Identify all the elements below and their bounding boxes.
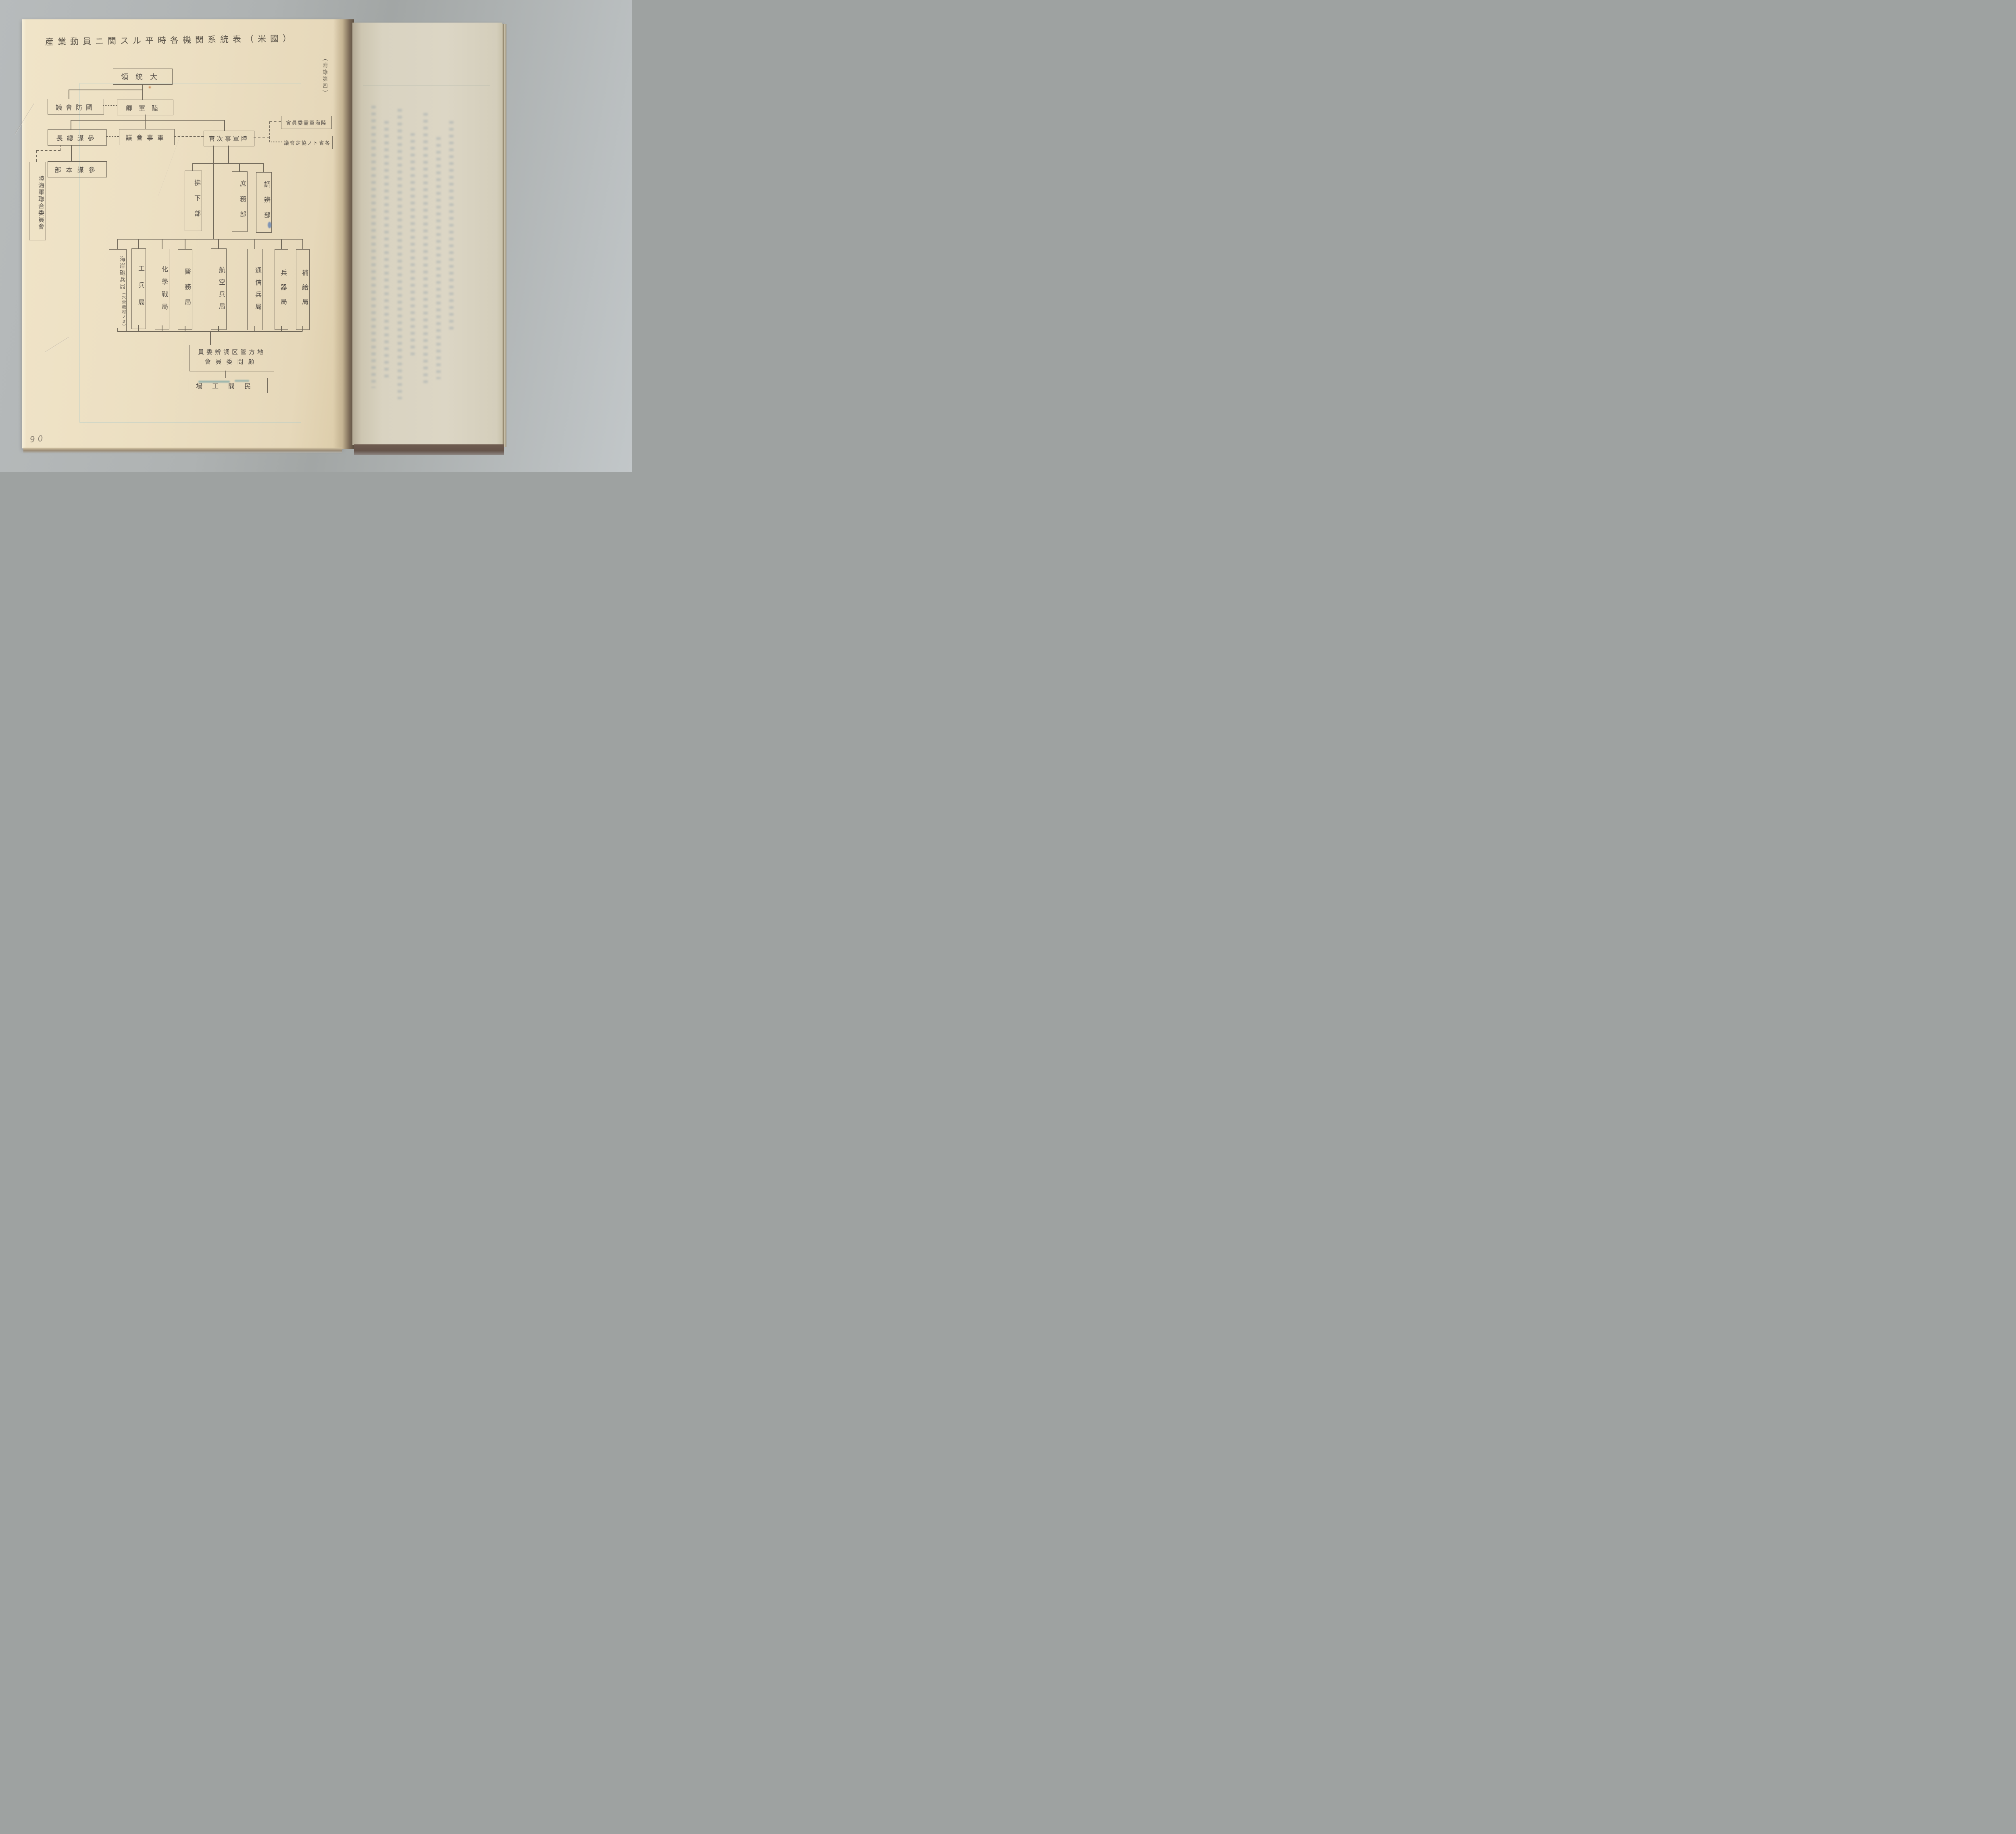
connector-dashed bbox=[254, 137, 269, 138]
connector-line bbox=[138, 239, 139, 248]
node-president: 大統領 bbox=[113, 69, 173, 85]
connector-dashed bbox=[269, 121, 281, 122]
node-army-secretary: 陸軍卿 bbox=[117, 100, 173, 115]
show-through-column bbox=[398, 109, 402, 399]
connector-line bbox=[117, 239, 118, 249]
appendix-margin-note: （附錄第四） bbox=[321, 56, 328, 104]
connector-line bbox=[185, 326, 185, 331]
connector-dashed bbox=[36, 150, 37, 162]
connector-line bbox=[302, 326, 303, 331]
page-stack-edge bbox=[502, 24, 506, 447]
node-bureau-supply: 補給局 bbox=[296, 249, 310, 330]
connector-line bbox=[69, 90, 69, 99]
connector-line bbox=[71, 145, 72, 161]
node-civilian-factories: 民間工場 bbox=[189, 378, 268, 393]
connector-line bbox=[224, 120, 225, 131]
show-through-column bbox=[410, 133, 415, 359]
connector-line bbox=[218, 326, 219, 331]
connector-line bbox=[162, 325, 162, 331]
node-bureau-chemical-warfare: 化學戰局 bbox=[155, 249, 169, 329]
connector-line bbox=[185, 239, 185, 249]
connector-line bbox=[117, 239, 302, 240]
node-military-council: 軍事會議 bbox=[119, 129, 175, 145]
node-army-vice-secretary: 陸軍事次官 bbox=[204, 131, 254, 146]
node-bureau-engineers: 工兵局 bbox=[131, 248, 146, 329]
node-chief-of-staff: 參謀總長 bbox=[48, 129, 107, 146]
connector-line bbox=[254, 239, 255, 249]
connector-line bbox=[281, 326, 282, 331]
district-committee-line2: 顧問委員會 bbox=[190, 357, 274, 366]
connector-line bbox=[71, 120, 224, 121]
erased-ink-smear bbox=[235, 380, 249, 382]
connector-line bbox=[225, 371, 226, 378]
connector-line bbox=[69, 90, 142, 90]
connector-line bbox=[142, 84, 143, 100]
show-through-column bbox=[384, 121, 389, 379]
node-ministries-conference: 各省トノ協定會議 bbox=[282, 136, 333, 149]
connector-dashed bbox=[60, 145, 61, 150]
node-defense-council: 國防會議 bbox=[48, 99, 104, 115]
erased-ink-smear bbox=[198, 381, 230, 383]
node-bureau-ordnance: 兵器局 bbox=[275, 249, 288, 330]
connector-line bbox=[138, 325, 139, 331]
node-bureau-signal: 通信兵局 bbox=[247, 249, 263, 330]
book-block-edge bbox=[354, 444, 504, 455]
show-through-column bbox=[423, 113, 428, 387]
node-general-affairs-dept: 庶務部 bbox=[232, 171, 248, 232]
node-joint-army-navy-board: 陸海軍聯合委員會 bbox=[29, 162, 46, 240]
node-general-staff-hq: 參謀本部 bbox=[48, 161, 107, 177]
node-bureau-aviation: 航空兵局 bbox=[211, 248, 227, 330]
connector-line bbox=[192, 163, 263, 164]
connector-dashed bbox=[36, 150, 60, 151]
connector-line bbox=[218, 239, 219, 248]
connector-line bbox=[239, 163, 240, 171]
left-page-bottom-edge bbox=[23, 448, 342, 453]
paper-spot bbox=[149, 86, 151, 88]
connector-line bbox=[302, 239, 303, 249]
connector-dashed bbox=[269, 122, 270, 142]
connector-line bbox=[228, 146, 229, 163]
connector-line bbox=[281, 239, 282, 249]
connector-dashed bbox=[174, 136, 204, 137]
page-number: 90 bbox=[29, 433, 46, 444]
connector-line bbox=[263, 163, 264, 172]
connector-line bbox=[71, 120, 71, 129]
show-through-column bbox=[436, 137, 441, 379]
scanned-book-photo: 産業動員ニ関スル平時各機関系統表（米國） （附錄第四） 90 大統領 國防會議 … bbox=[0, 0, 632, 472]
show-through-column bbox=[449, 121, 454, 331]
bureau-label: 海岸砲兵局 bbox=[109, 256, 126, 290]
connector-dotted bbox=[269, 142, 282, 142]
bureau-note: （水雷機材ノミ） bbox=[109, 290, 126, 329]
node-bureau-medical: 醫務局 bbox=[178, 249, 192, 330]
ink-blot bbox=[268, 222, 271, 228]
connector-line bbox=[162, 239, 162, 249]
connector-dotted bbox=[103, 105, 117, 106]
district-committee-line1: 地方管区調辨委員 bbox=[190, 348, 274, 356]
connector-dotted bbox=[106, 136, 119, 137]
connector-line bbox=[145, 115, 146, 129]
connector-line bbox=[192, 163, 193, 171]
node-bureau-coast-artillery: 海岸砲兵局（水雷機材ノミ） bbox=[109, 249, 127, 332]
show-through-column bbox=[371, 106, 376, 388]
node-munitions-board: 陸海軍需委員會 bbox=[281, 116, 332, 129]
node-sales-dept: 拂下部 bbox=[185, 171, 202, 231]
connector-line bbox=[213, 146, 214, 239]
connector-line bbox=[210, 331, 211, 345]
node-district-committee: 地方管区調辨委員 顧問委員會 bbox=[190, 345, 274, 371]
book-gutter-fold bbox=[333, 19, 354, 449]
